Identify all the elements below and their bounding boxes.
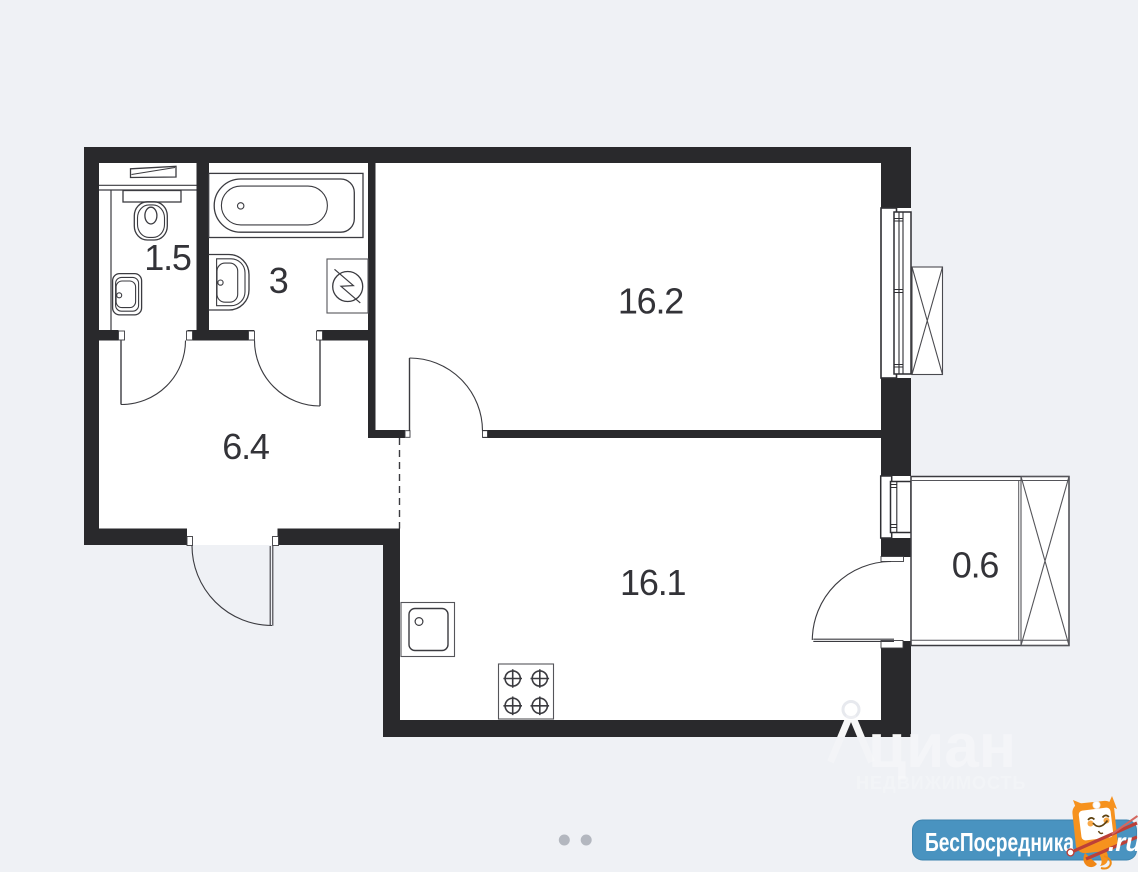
svg-text:1.5: 1.5 — [144, 237, 191, 278]
svg-text:БесПосредника: БесПосредника — [925, 827, 1074, 857]
svg-text:0.6: 0.6 — [952, 545, 999, 586]
svg-text:НЕДВИЖИМОСТЬ: НЕДВИЖИМОСТЬ — [856, 773, 1026, 793]
svg-text:16.2: 16.2 — [618, 280, 683, 321]
svg-text:6.4: 6.4 — [222, 426, 269, 467]
svg-text:16.1: 16.1 — [620, 562, 685, 603]
svg-text:.ru: .ru — [1108, 827, 1138, 857]
svg-text:3: 3 — [269, 260, 288, 301]
